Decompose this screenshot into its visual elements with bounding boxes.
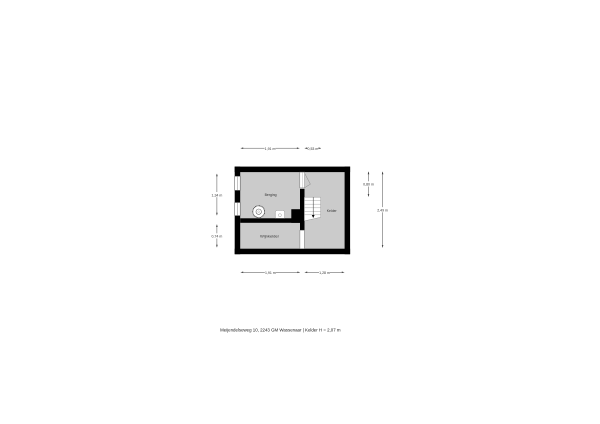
svg-text:1,28 m: 1,28 m xyxy=(319,271,330,275)
svg-text:1,34 m: 1,34 m xyxy=(212,193,223,197)
svg-text:Kelder: Kelder xyxy=(327,209,338,213)
svg-text:2,49 m: 2,49 m xyxy=(377,208,388,212)
svg-text:Wijnkelder: Wijnkelder xyxy=(260,233,280,238)
svg-text:0,53 m: 0,53 m xyxy=(308,147,319,151)
svg-text:0,80 m: 0,80 m xyxy=(363,183,374,187)
svg-text:1,91 m: 1,91 m xyxy=(265,271,276,275)
svg-text:0,74 m: 0,74 m xyxy=(212,235,223,239)
svg-text:1,91 m: 1,91 m xyxy=(265,147,276,151)
svg-text:Meijendelseweg 10, 2243 GM Was: Meijendelseweg 10, 2243 GM Wassenaar | K… xyxy=(220,327,341,332)
svg-text:Berging: Berging xyxy=(265,193,277,197)
